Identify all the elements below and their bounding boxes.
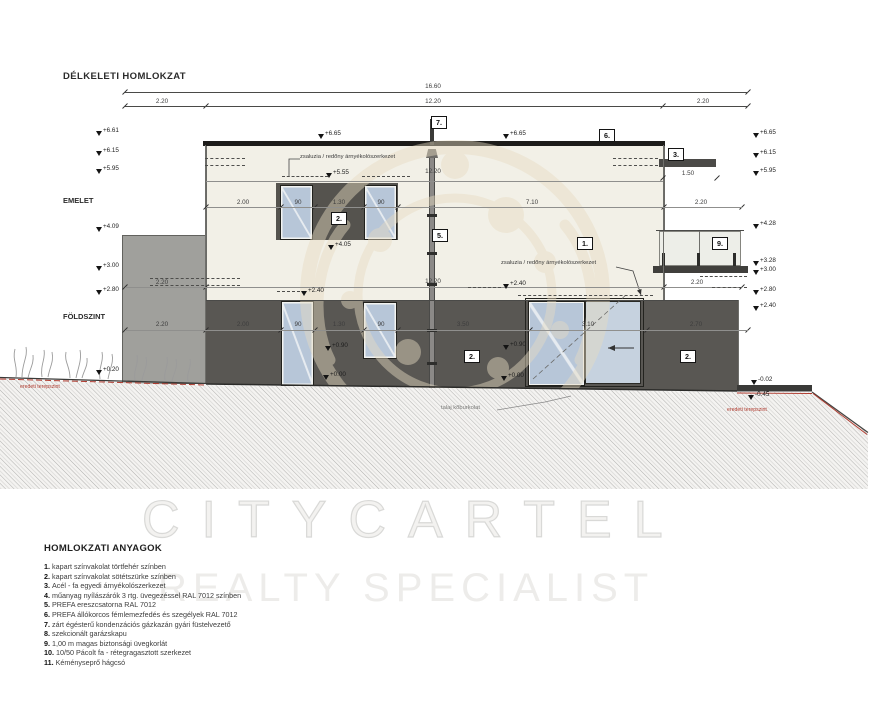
dim-line-ground: [125, 330, 748, 331]
watermark-citycartel: CITYCARTEL: [142, 494, 685, 546]
elevation-marker: +2.80: [96, 287, 119, 298]
elevation-marker: +6.65: [503, 131, 526, 142]
annotation-shade-upper: zsaluzia / redőny árnyékolószerkezet: [300, 155, 395, 161]
elevation-marker: +6.15: [96, 148, 119, 159]
callout-gutter: 5.: [432, 229, 448, 242]
level-triangle-icon: [503, 345, 509, 353]
level-triangle-icon: [753, 290, 759, 298]
annotation-terrain-left: eredeti terepszint: [20, 385, 60, 390]
dim-upper-0: 2.00: [237, 200, 249, 206]
floor-label-upper: EMELET: [63, 196, 93, 205]
elevation-marker: +0.00: [501, 373, 524, 384]
hidden-line: [362, 176, 410, 177]
callout-awning: 3.: [668, 148, 684, 161]
dim-awning: 1.50: [682, 171, 694, 177]
legend-item: 8.szekcionált garázskapu: [44, 630, 127, 637]
dim-ground-7: 2.70: [690, 322, 702, 328]
elevation-marker: -0.45: [748, 392, 769, 403]
legend-item: 4.műanyag nyílászárók 3 rtg. üvegezéssel…: [44, 592, 241, 599]
dim-upper-4: 7.10: [526, 200, 538, 206]
elevation-marker: -0.02: [751, 377, 772, 388]
level-triangle-icon: [96, 227, 102, 235]
elevation-marker: +6.15: [753, 150, 776, 161]
dim-seg-left: 2.20: [156, 99, 168, 105]
callout-facade-dark-b: 2.: [680, 350, 696, 363]
legend-item: 9.1,00 m magas biztonsági üvegkorlát: [44, 640, 167, 647]
hidden-line: [468, 287, 501, 288]
level-triangle-icon: [753, 224, 759, 232]
callout-railing: 9.: [712, 237, 728, 250]
elevation-marker: +6.61: [96, 128, 119, 139]
sliding-door-pane-right: [585, 301, 641, 384]
level-triangle-icon: [96, 266, 102, 274]
elevation-marker: +3.00: [96, 263, 119, 274]
level-triangle-icon: [96, 169, 102, 177]
dim-mid-width-a: 12.20: [425, 169, 441, 175]
earth-hatch: [0, 379, 868, 489]
dim-upper-1: 90: [294, 200, 301, 206]
level-triangle-icon: [753, 171, 759, 179]
legend-item: 1.kapart színvakolat törtfehér színben: [44, 563, 166, 570]
elevation-marker: +6.65: [753, 130, 776, 141]
level-triangle-icon: [503, 134, 509, 142]
floor-line: [125, 287, 742, 288]
elevation-marker: +5.95: [753, 168, 776, 179]
level-triangle-icon: [96, 151, 102, 159]
hidden-line: [613, 158, 658, 159]
dim-line-total: [125, 92, 748, 93]
sliding-door-pane-left: [528, 301, 585, 386]
roof-edge: [203, 141, 665, 146]
elevation-marker: +3.00: [753, 267, 776, 278]
level-triangle-icon: [753, 133, 759, 141]
level-triangle-icon: [96, 370, 102, 378]
elevation-marker: +0.00: [323, 372, 346, 383]
legend-item: 10.10/50 Pácolt fa - rétegragasztott sze…: [44, 649, 191, 656]
dim-ground-3: 1.30: [333, 322, 345, 328]
hidden-line: [205, 165, 245, 166]
level-triangle-icon: [753, 306, 759, 314]
legend-item: 6.PREFA állókorcos fémlemezfedés és szeg…: [44, 611, 238, 618]
watermark-realty-specialist: REALTY SPECIALIST: [158, 568, 654, 608]
elevation-marker: +6.65: [318, 131, 341, 142]
flue-joint: [427, 214, 437, 217]
elevation-marker: +0.20: [96, 367, 119, 378]
level-triangle-icon: [748, 395, 754, 403]
level-triangle-icon: [325, 346, 331, 354]
dim-total: 16.60: [425, 84, 441, 90]
dim-ground-0: 2.20: [156, 322, 168, 328]
dim-ground-6: 3.10: [582, 322, 594, 328]
hidden-line: [518, 295, 653, 296]
flue-joint: [427, 252, 437, 255]
railing-post: [733, 253, 736, 267]
dim-ground-4: 90: [377, 322, 384, 328]
elevation-marker: +0.90: [325, 343, 348, 354]
dim-mid-width-b: 12.20: [425, 279, 441, 285]
dim-ground-5: 3.50: [457, 322, 469, 328]
level-triangle-icon: [96, 131, 102, 139]
dim-balcony: 2.20: [691, 280, 703, 286]
elevation-marker: +2.40: [503, 281, 526, 292]
annotation-stone: talaj kőburkolat: [441, 406, 480, 412]
level-triangle-icon: [503, 284, 509, 292]
callout-facade-dark-a: 2.: [464, 350, 480, 363]
elevation-marker: +5.55: [326, 170, 349, 181]
elevation-marker: +2.40: [301, 288, 324, 299]
legend-item: 2.kapart színvakolat sötétszürke színben: [44, 573, 176, 580]
ground-door-left: [281, 301, 314, 386]
upper-window-left: [280, 185, 313, 240]
callout-facade-light: 1.: [577, 237, 593, 250]
legend-item: 3.Acél - fa egyedi árnyékolószerkezet: [44, 582, 165, 589]
level-triangle-icon: [328, 245, 334, 253]
elevation-marker: +4.28: [753, 221, 776, 232]
dim-ground-1: 2.00: [237, 322, 249, 328]
balcony-slab: [653, 266, 748, 273]
hidden-line: [712, 287, 747, 288]
level-line-240: [206, 300, 738, 301]
level-triangle-icon: [96, 290, 102, 298]
level-triangle-icon: [753, 270, 759, 278]
side-wall: [122, 235, 206, 384]
legend-item: 7.zárt égésterű kondenzációs gázkazán gy…: [44, 621, 231, 628]
elevation-marker: +2.40: [753, 303, 776, 314]
dim-upper-3: 90: [377, 200, 384, 206]
elevation-marker: +5.95: [96, 166, 119, 177]
railing-post: [697, 253, 700, 267]
annotation-terrain-right: eredeti terepszint: [727, 408, 767, 413]
elevation-marker: +0.90: [503, 342, 526, 353]
hidden-line: [282, 176, 328, 177]
level-triangle-icon: [751, 380, 757, 388]
elevation-marker: +4.05: [328, 242, 351, 253]
dim-seg-mid: 12.20: [425, 99, 441, 105]
dim-line-segments: [125, 106, 748, 107]
elevation-marker: +2.80: [753, 287, 776, 298]
ground-floor-right-edge: [738, 300, 739, 391]
upper-window-right: [364, 185, 397, 240]
drawing-title: DÉLKELETI HOMLOKZAT: [63, 71, 186, 82]
level-triangle-icon: [323, 375, 329, 383]
hidden-line: [613, 165, 658, 166]
dim-ground-2: 90: [294, 322, 301, 328]
annotation-shade-lower: zsaluzia / redőny árnyékolószerkezet: [501, 261, 596, 267]
elevation-drawing-canvas: CITYCARTEL REALTY SPECIALIST DÉLKELETI H…: [0, 0, 873, 713]
legend-title: HOMLOKZATI ANYAGOK: [44, 543, 162, 554]
dim-seg-right: 2.20: [697, 99, 709, 105]
callout-roof: 6.: [599, 129, 615, 142]
dim-line-upper: [206, 207, 742, 208]
legend-item: 11.Kéményseprő hágcsó: [44, 659, 125, 666]
hidden-line: [205, 158, 245, 159]
flue-pipe: [429, 158, 435, 388]
level-triangle-icon: [326, 173, 332, 181]
balcony-glass-railing: [659, 231, 741, 266]
dim-upper-balcony: 2.20: [695, 200, 707, 206]
facade-right-edge: [663, 145, 664, 300]
level-triangle-icon: [753, 153, 759, 161]
level-triangle-icon: [318, 134, 324, 142]
dim-upper-2: 1.30: [333, 200, 345, 206]
callout-flue: 7.: [431, 116, 447, 129]
legend-item: 5.PREFA ereszcsatorna RAL 7012: [44, 601, 156, 608]
dim-floor-left: 2.20: [156, 280, 168, 286]
elevation-marker: +4.09: [96, 224, 119, 235]
railing-top-rail: [656, 230, 744, 231]
flue-joint: [427, 362, 437, 365]
hidden-line: [277, 291, 300, 292]
callout-facade-dark-upper: 2.: [331, 212, 347, 225]
level-line-555: [206, 181, 663, 182]
level-triangle-icon: [301, 291, 307, 299]
floor-label-ground: FÖLDSZINT: [63, 312, 105, 321]
level-triangle-icon: [501, 376, 507, 384]
hidden-line: [700, 276, 747, 277]
